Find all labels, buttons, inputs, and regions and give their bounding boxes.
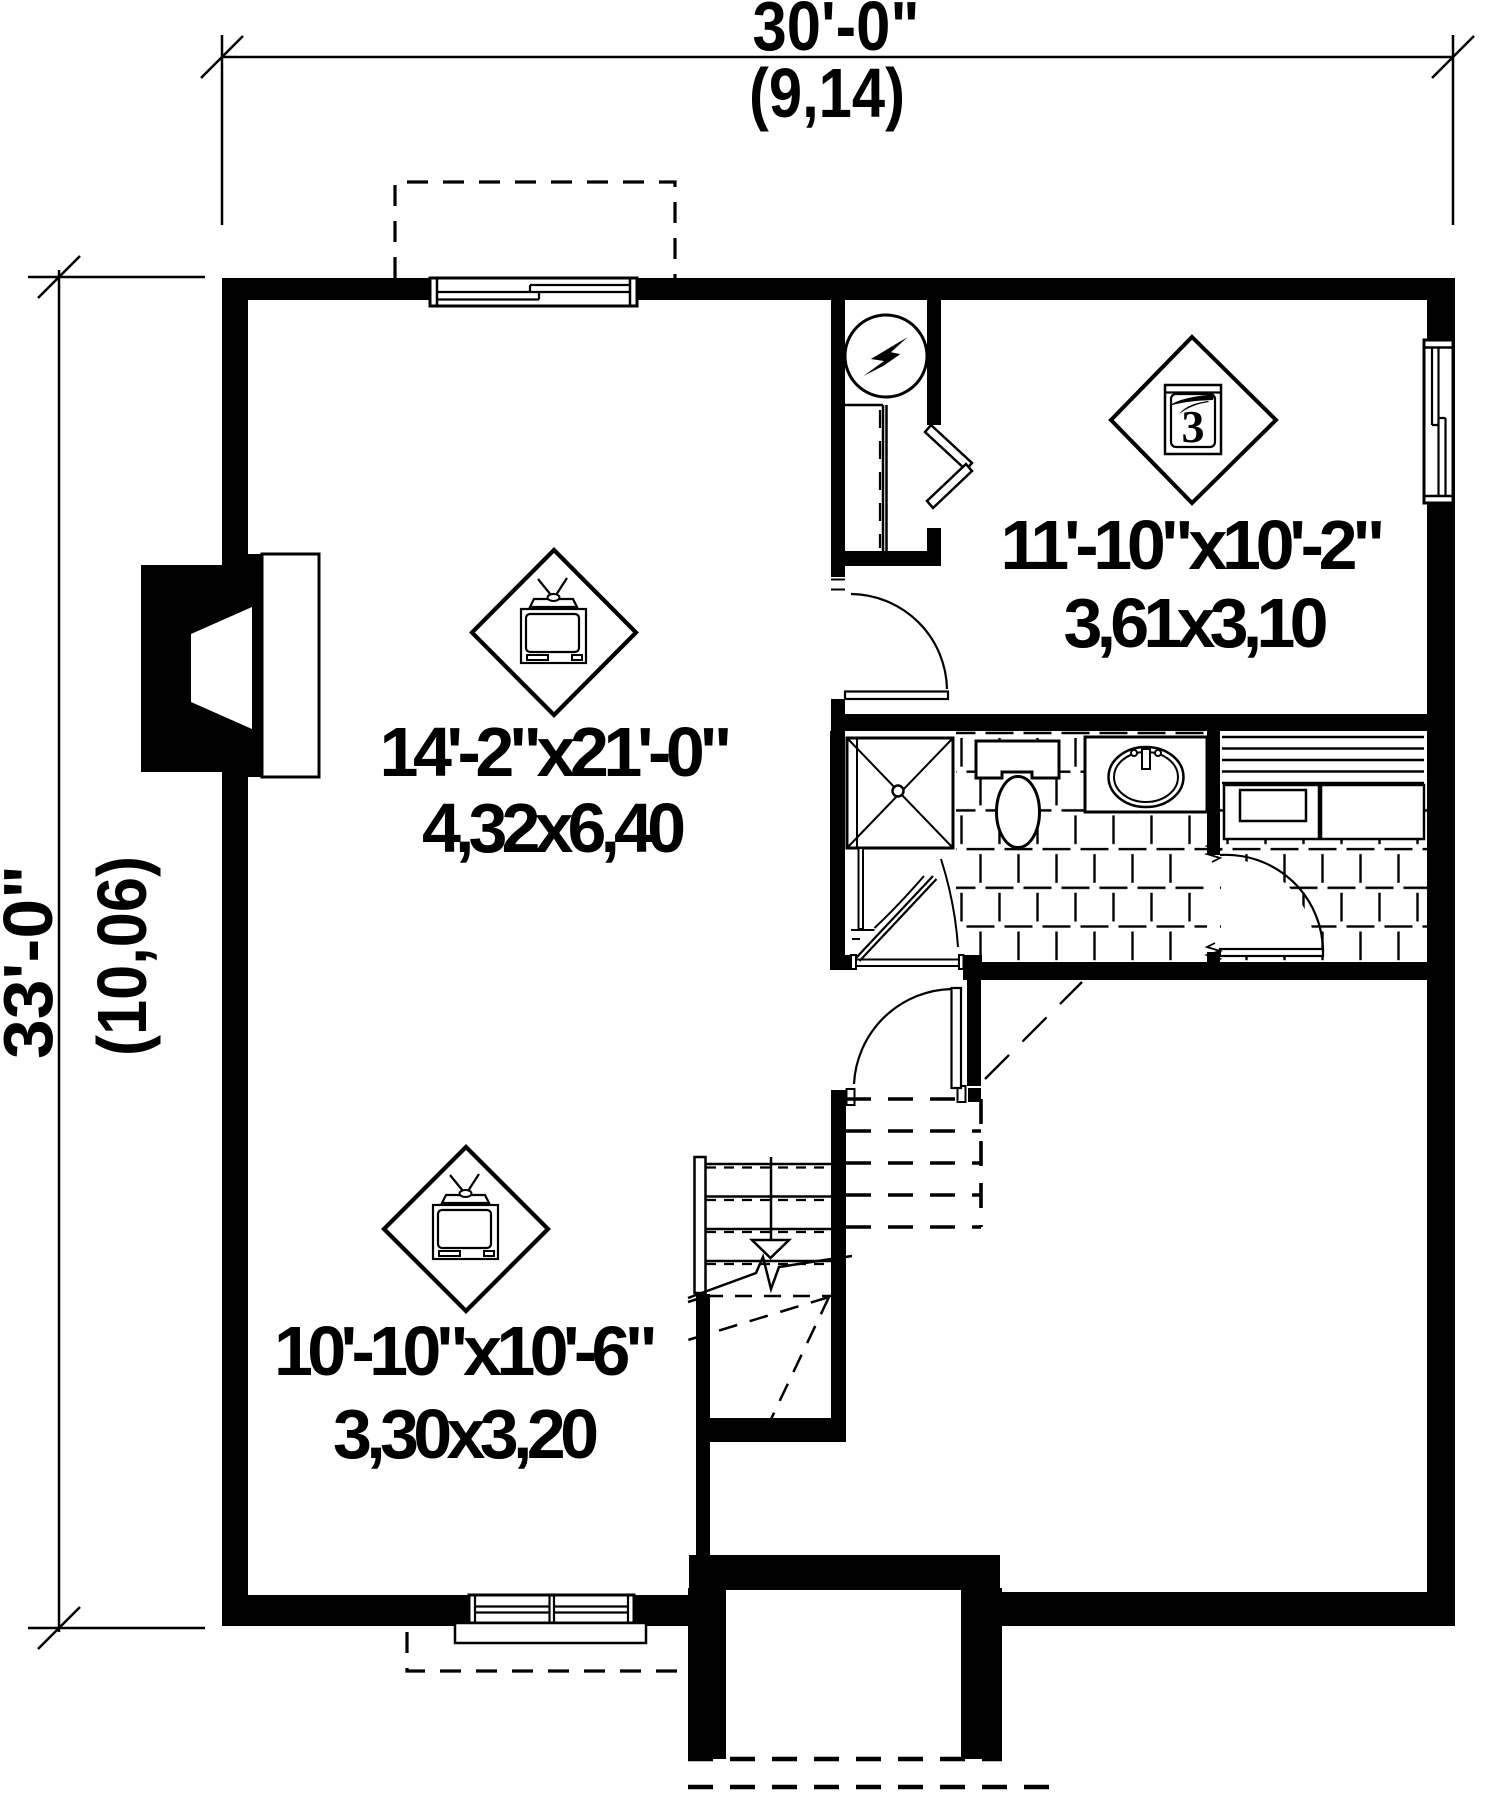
svg-text:4,32x6,40: 4,32x6,40	[422, 789, 686, 867]
svg-text:3,30x3,20: 3,30x3,20	[333, 1395, 599, 1473]
svg-text:3: 3	[1182, 401, 1205, 452]
svg-text:10'-10"x10'-6": 10'-10"x10'-6"	[274, 1312, 658, 1390]
svg-text:(10,06): (10,06)	[83, 856, 161, 1056]
svg-text:(9,14): (9,14)	[749, 54, 905, 132]
svg-text:3,61x3,10: 3,61x3,10	[1064, 584, 1329, 662]
svg-text:14'-2"x21'-0": 14'-2"x21'-0"	[380, 713, 733, 791]
svg-text:11'-10"x10'-2": 11'-10"x10'-2"	[1001, 506, 1386, 584]
svg-text:33'-0": 33'-0"	[0, 865, 67, 1059]
